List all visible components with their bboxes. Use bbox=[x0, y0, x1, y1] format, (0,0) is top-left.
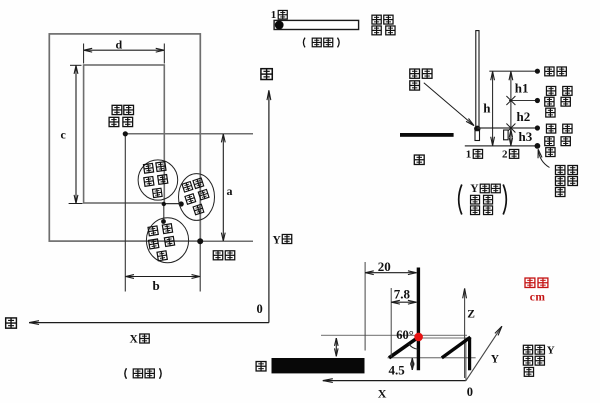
svg-text:X: X bbox=[378, 387, 387, 401]
svg-text:Y: Y bbox=[547, 344, 555, 356]
svg-text:0: 0 bbox=[257, 302, 263, 316]
svg-text:a: a bbox=[227, 184, 233, 198]
svg-text:7.8: 7.8 bbox=[394, 286, 411, 301]
svg-text:Y: Y bbox=[470, 183, 479, 195]
svg-text:0: 0 bbox=[467, 385, 473, 399]
svg-text:d: d bbox=[116, 38, 123, 52]
svg-text:1: 1 bbox=[271, 9, 277, 21]
svg-text:Y: Y bbox=[273, 235, 282, 247]
svg-text:c: c bbox=[61, 128, 67, 142]
svg-text:h3: h3 bbox=[519, 129, 533, 144]
svg-text:1: 1 bbox=[466, 149, 472, 161]
svg-text:X: X bbox=[130, 334, 139, 346]
svg-text:4.5: 4.5 bbox=[389, 363, 406, 378]
svg-text:20: 20 bbox=[378, 259, 391, 274]
svg-text:2: 2 bbox=[502, 149, 508, 161]
svg-text:cm: cm bbox=[530, 291, 546, 303]
svg-text:h2: h2 bbox=[517, 109, 531, 124]
svg-text:Z: Z bbox=[467, 308, 475, 320]
svg-text:Y: Y bbox=[491, 353, 500, 365]
svg-text:h1: h1 bbox=[515, 81, 529, 96]
svg-text:h: h bbox=[483, 101, 491, 116]
svg-text:b: b bbox=[153, 278, 160, 293]
svg-text:60°: 60° bbox=[396, 328, 414, 342]
